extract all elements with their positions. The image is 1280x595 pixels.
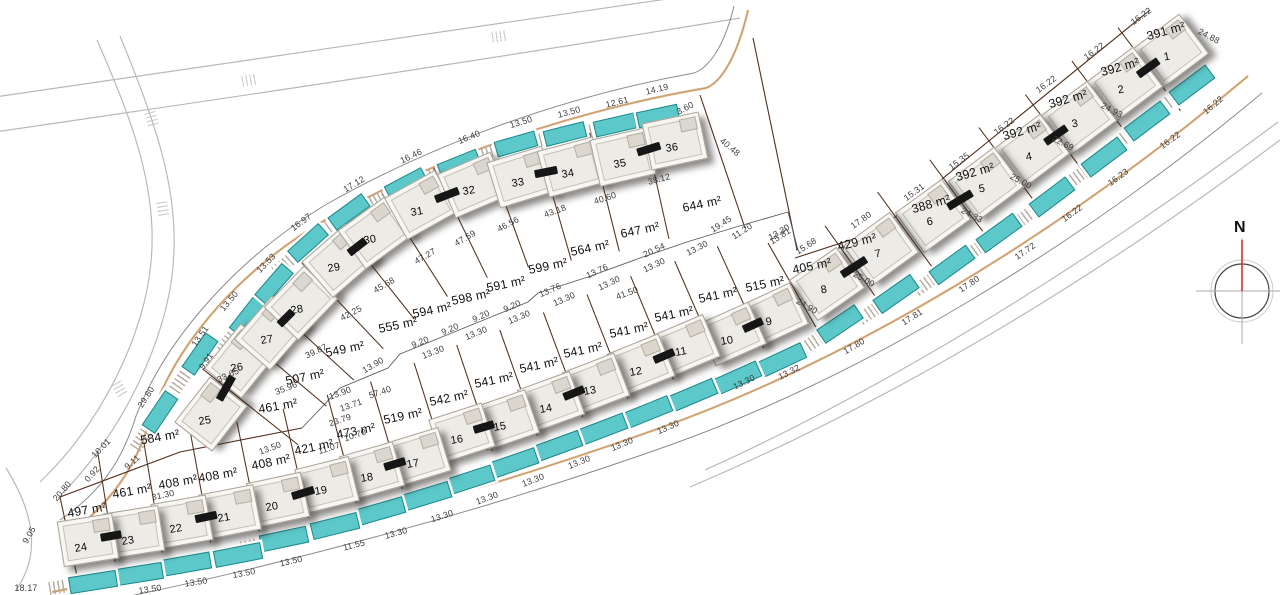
- compass-rose: [1196, 238, 1280, 344]
- site-plan: N 1391 m²2392 m²3392 m²4392 m²5392 m²638…: [0, 0, 1280, 595]
- plot-number-label: 34: [561, 167, 576, 181]
- plot-number-label: 28: [290, 303, 305, 317]
- plot-number-label: 24: [74, 541, 89, 555]
- plot-number-label: 36: [665, 141, 680, 155]
- plot-number-label: 12: [629, 365, 644, 379]
- plot-number-label: 33: [511, 176, 526, 190]
- plot-number-label: 11: [674, 345, 688, 359]
- dimension-label: 18.17: [14, 583, 37, 593]
- plot-number-label: 31: [410, 205, 425, 219]
- plot-number-label: 16: [450, 433, 465, 447]
- plot-number-label: 20: [265, 500, 280, 514]
- plot-number-label: 18: [360, 471, 375, 485]
- plot-number-label: 17: [406, 457, 421, 471]
- plot-number-label: 14: [539, 402, 554, 416]
- plot-number-label: 13: [583, 384, 598, 398]
- north-label: N: [1234, 219, 1246, 237]
- plot-number-label: 15: [493, 420, 508, 434]
- plot-number-label: 30: [363, 233, 378, 247]
- road-hatch-mark: [491, 29, 508, 42]
- plot-number-label: 25: [198, 414, 213, 428]
- plot-number-label: 10: [720, 334, 735, 348]
- plot-number-label: 35: [613, 157, 628, 171]
- plot-number-label: 23: [121, 534, 136, 548]
- plot-number-label: 26: [230, 361, 245, 375]
- plot-number-label: 21: [217, 511, 232, 525]
- plot-number-label: 29: [327, 261, 342, 275]
- plot-number-label: 32: [462, 184, 477, 198]
- plot-number-label: 22: [169, 522, 184, 536]
- plot-number-label: 27: [260, 333, 275, 347]
- plot-number-label: 19: [314, 484, 329, 498]
